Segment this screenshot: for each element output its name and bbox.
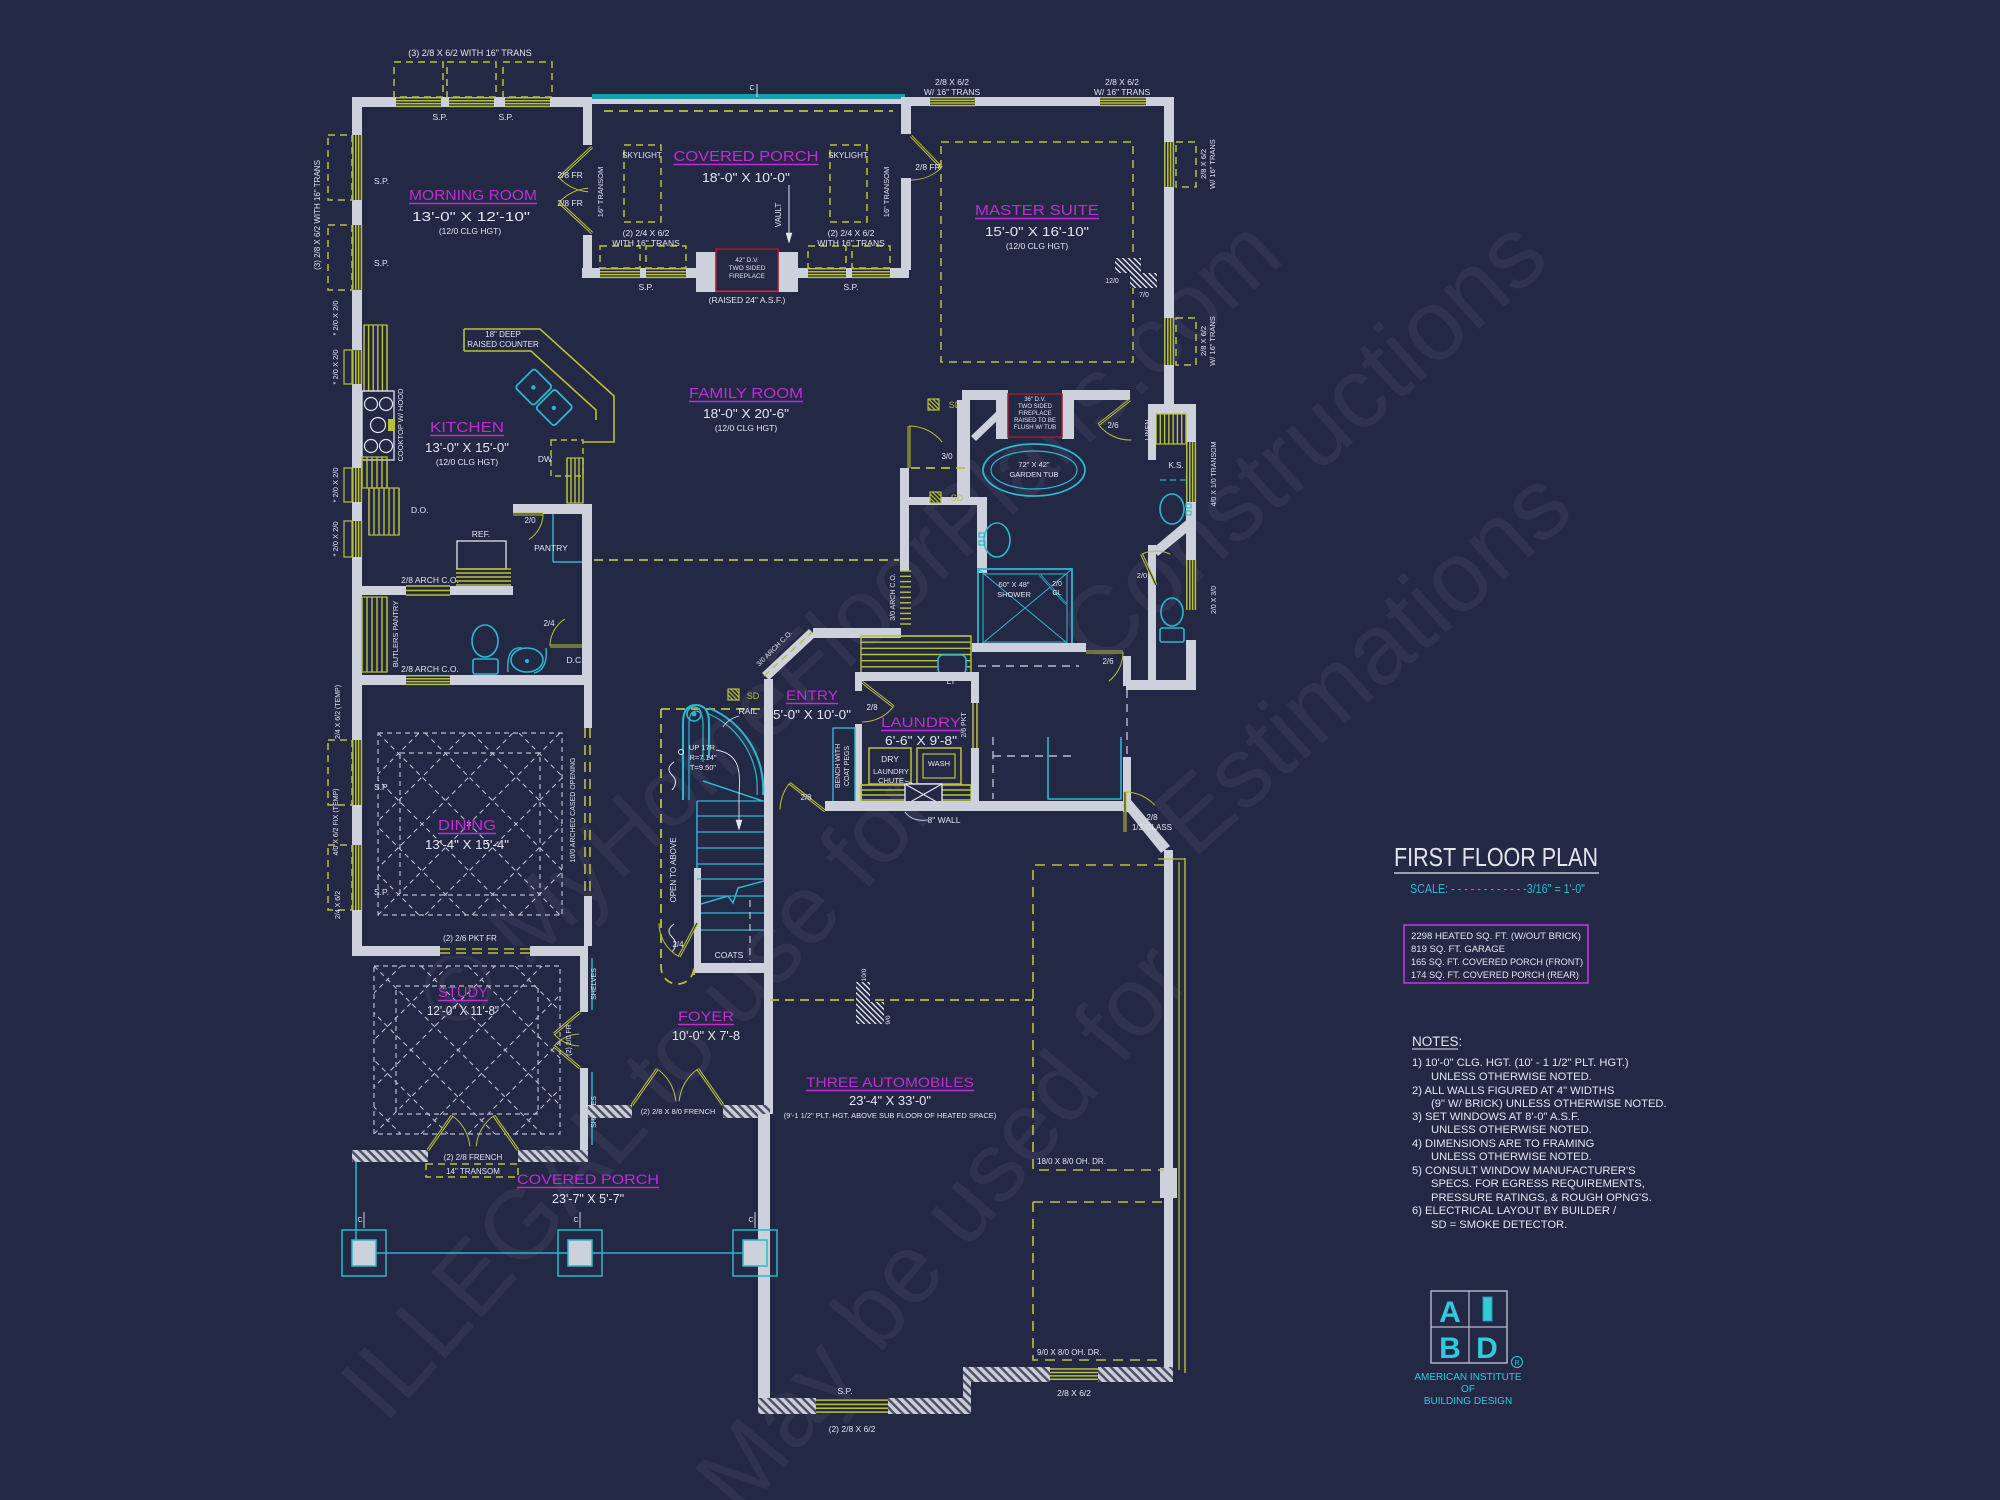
svg-text:A: A	[1439, 1296, 1461, 1329]
svg-text:SKYLIGHT: SKYLIGHT	[622, 151, 662, 160]
svg-text:18'-0" X 10'-0": 18'-0" X 10'-0"	[702, 170, 790, 185]
svg-text:COOKTOP W/ HOOD: COOKTOP W/ HOOD	[396, 388, 405, 462]
svg-text:2/8 X 6/2: 2/8 X 6/2	[1057, 1388, 1091, 1398]
svg-text:2/6: 2/6	[1102, 657, 1114, 666]
svg-text:2/8 X 6/2: 2/8 X 6/2	[1199, 149, 1208, 179]
svg-text:C: C	[573, 1217, 578, 1224]
svg-text:174 SQ. FT. COVERED PORCH (REA: 174 SQ. FT. COVERED PORCH (REAR)	[1411, 970, 1579, 981]
svg-text:2/8 ARCH C.O.: 2/8 ARCH C.O.	[401, 575, 459, 585]
svg-text:2/8: 2/8	[866, 703, 878, 712]
svg-text:10'-0" X 7'-8: 10'-0" X 7'-8	[672, 1029, 740, 1043]
svg-text:(2) 2/8 X 8/0 FRENCH: (2) 2/8 X 8/0 FRENCH	[641, 1107, 716, 1116]
svg-text:UNLESS OTHERWISE NOTED.: UNLESS OTHERWISE NOTED.	[1431, 1071, 1592, 1083]
svg-text:LAUNDRY: LAUNDRY	[881, 714, 962, 730]
svg-text:2/8 ARCH C.O.: 2/8 ARCH C.O.	[401, 664, 459, 674]
svg-text:1/2 GLASS: 1/2 GLASS	[1132, 823, 1172, 832]
svg-text:(2) 2/0 FR: (2) 2/0 FR	[566, 1024, 573, 1056]
svg-text:* 2/0 X 2/0: * 2/0 X 2/0	[331, 467, 340, 502]
svg-text:TWO SIDED: TWO SIDED	[1018, 404, 1053, 410]
svg-text:2/4: 2/4	[672, 940, 684, 949]
svg-text:2/0: 2/0	[524, 516, 536, 525]
svg-text:2/8: 2/8	[1146, 813, 1158, 822]
svg-text:2) ALL WALLS FIGURED AT 4" WI: 2) ALL WALLS FIGURED AT 4" WIDTHS	[1412, 1085, 1614, 1097]
svg-text:(12/0 CLG HGT): (12/0 CLG HGT)	[715, 423, 778, 433]
svg-text:9/0 X 8/0 OH. DR.: 9/0 X 8/0 OH. DR.	[1037, 1348, 1101, 1357]
svg-text:2/8: 2/8	[800, 793, 812, 802]
svg-text:S.P.: S.P.	[374, 176, 389, 186]
svg-text:18/0 X 8/0 OH. DR.: 18/0 X 8/0 OH. DR.	[1037, 1157, 1106, 1166]
svg-text:2298 HEATED SQ. FT. (W/OUT BRI: 2298 HEATED SQ. FT. (W/OUT BRICK)	[1411, 931, 1581, 942]
svg-text:6'-6" X 9'-8": 6'-6" X 9'-8"	[885, 734, 957, 748]
svg-text:PRESSURE RATINGS, & ROUGH OPNG: PRESSURE RATINGS, & ROUGH OPNG'S.	[1431, 1192, 1652, 1204]
svg-text:S.P.: S.P.	[433, 112, 448, 122]
svg-text:2/0: 2/0	[1052, 581, 1062, 588]
svg-text:9/0: 9/0	[885, 1015, 892, 1024]
svg-text:15'-0" X 16'-10": 15'-0" X 16'-10"	[985, 224, 1089, 239]
svg-text:2/6: 2/6	[1107, 421, 1119, 430]
svg-text:UNLESS OTHERWISE NOTED.: UNLESS OTHERWISE NOTED.	[1431, 1151, 1592, 1163]
svg-text:13'-4" X 15'-4": 13'-4" X 15'-4"	[425, 838, 509, 852]
svg-text:WITH 16" TRANS: WITH 16" TRANS	[612, 238, 680, 248]
svg-text:60" X 48": 60" X 48"	[998, 580, 1030, 589]
svg-text:B: B	[1439, 1332, 1461, 1365]
svg-text:FAMILY ROOM: FAMILY ROOM	[689, 385, 803, 402]
svg-text:4) DIMENSIONS ARE TO FRAMING: 4) DIMENSIONS ARE TO FRAMING	[1412, 1138, 1594, 1150]
svg-text:R: R	[1514, 1360, 1519, 1367]
svg-text:SKYLIGHT: SKYLIGHT	[828, 151, 868, 160]
svg-text:CHUTE: CHUTE	[878, 776, 904, 785]
svg-text:2/8 FR: 2/8 FR	[557, 198, 583, 208]
svg-text:(2) 2/4 X 6/2: (2) 2/4 X 6/2	[623, 228, 670, 238]
svg-text:NOTES:: NOTES:	[1412, 1034, 1462, 1049]
svg-text:7/0: 7/0	[1139, 292, 1149, 299]
svg-text:FOYER: FOYER	[678, 1008, 734, 1024]
svg-text:5'-0" X 10'-0": 5'-0" X 10'-0"	[773, 708, 851, 722]
svg-text:THREE AUTOMOBILES: THREE AUTOMOBILES	[806, 1074, 974, 1090]
svg-text:COATS: COATS	[715, 950, 744, 960]
svg-text:16" TRANSOM: 16" TRANSOM	[596, 167, 605, 217]
svg-text:T=9.50": T=9.50"	[690, 763, 717, 772]
svg-text:MORNING ROOM: MORNING ROOM	[409, 187, 537, 204]
svg-text:(2) 2/4 X 6/2: (2) 2/4 X 6/2	[828, 228, 875, 238]
svg-text:23'-4" X 33'-0": 23'-4" X 33'-0"	[849, 1094, 931, 1108]
svg-text:2/4: 2/4	[543, 619, 555, 628]
svg-text:FLUSH W/ TUB: FLUSH W/ TUB	[1014, 425, 1056, 431]
svg-text:S.P.: S.P.	[639, 282, 654, 292]
svg-text:16" TRANSOM: 16" TRANSOM	[882, 167, 891, 217]
svg-text:RAIL: RAIL	[739, 706, 758, 716]
svg-text:UP 17R: UP 17R	[689, 743, 716, 752]
svg-text:5) CONSULT WINDOW MANUFACTURER: 5) CONSULT WINDOW MANUFACTURER'S	[1412, 1165, 1636, 1177]
svg-text:SD: SD	[951, 493, 964, 503]
svg-text:KITCHEN: KITCHEN	[430, 419, 504, 436]
svg-text:* 2/0 X 2/0: * 2/0 X 2/0	[331, 349, 340, 384]
svg-text:42" D.V.: 42" D.V.	[735, 257, 759, 264]
svg-text:UNLESS OTHERWISE NOTED.: UNLESS OTHERWISE NOTED.	[1431, 1124, 1592, 1136]
svg-text:23'-7" X 5'-7": 23'-7" X 5'-7"	[552, 1192, 624, 1206]
svg-text:(12/0 CLG HGT): (12/0 CLG HGT)	[439, 226, 502, 236]
svg-text:* 2/0 X 2/0: * 2/0 X 2/0	[331, 300, 340, 335]
svg-text:SD = SMOKE DETECTOR.: SD = SMOKE DETECTOR.	[1431, 1219, 1567, 1231]
svg-text:DINING: DINING	[438, 817, 496, 834]
svg-text:WASH: WASH	[928, 759, 950, 768]
svg-text:SHELVES: SHELVES	[591, 968, 598, 1000]
svg-text:(9" W/ BRICK) UNLESS OTHERWISE: (9" W/ BRICK) UNLESS OTHERWISE NOTED.	[1431, 1098, 1667, 1110]
svg-text:2/8 X 6/2: 2/8 X 6/2	[935, 77, 969, 87]
svg-text:12/0: 12/0	[1105, 278, 1119, 285]
svg-text:(9'-1 1/2" PLT. HGT. ABOVE SUB: (9'-1 1/2" PLT. HGT. ABOVE SUB FLOOR OF …	[784, 1111, 997, 1120]
svg-text:S.P.: S.P.	[499, 112, 514, 122]
svg-text:COAT PEGS: COAT PEGS	[844, 746, 851, 787]
svg-text:R=7.14": R=7.14"	[689, 753, 716, 762]
svg-text:4/0 X 1/0 TRANSOM: 4/0 X 1/0 TRANSOM	[1211, 441, 1218, 506]
svg-text:3/0: 3/0	[941, 452, 953, 461]
svg-text:PANTRY: PANTRY	[534, 543, 568, 553]
svg-text:6) ELECTRICAL LAYOUT BY BUILDE: 6) ELECTRICAL LAYOUT BY BUILDER /	[1412, 1205, 1617, 1217]
svg-text:W/ 16" TRANS: W/ 16" TRANS	[1208, 316, 1217, 366]
svg-text:FIREPLACE: FIREPLACE	[729, 273, 766, 280]
svg-text:ENTRY: ENTRY	[786, 687, 839, 703]
svg-text:BUTLERS PANTRY: BUTLERS PANTRY	[391, 601, 400, 667]
svg-text:2/0: 2/0	[1137, 571, 1147, 580]
svg-text:W/ 16" TRANS: W/ 16" TRANS	[1094, 87, 1151, 97]
svg-text:(RAISED 24" A.S.F.): (RAISED 24" A.S.F.)	[709, 295, 786, 305]
svg-text:(12/0 CLG HGT): (12/0 CLG HGT)	[1006, 241, 1069, 251]
svg-text:K.S.: K.S.	[1168, 461, 1183, 470]
svg-text:(3) 2/8 X 6/2 WITH 16" TRANS: (3) 2/8 X 6/2 WITH 16" TRANS	[313, 160, 322, 270]
svg-text:FIRST FLOOR PLAN: FIRST FLOOR PLAN	[1394, 842, 1598, 872]
svg-text:STUDY: STUDY	[438, 984, 488, 1001]
svg-text:D.C.: D.C.	[567, 655, 584, 665]
svg-text:C: C	[748, 1217, 753, 1224]
svg-text:2/0 X 3/0: 2/0 X 3/0	[1211, 586, 1218, 614]
svg-text:AMERICAN INSTITUTE: AMERICAN INSTITUTE	[1414, 1372, 1522, 1383]
svg-text:13'-0" X 12'-10": 13'-0" X 12'-10"	[412, 209, 531, 224]
svg-text:14" TRANSOM: 14" TRANSOM	[446, 1167, 500, 1176]
svg-text:10/0: 10/0	[861, 968, 868, 981]
svg-text:SD: SD	[747, 691, 760, 701]
svg-text:36" D.V.: 36" D.V.	[1024, 397, 1046, 403]
svg-text:D: D	[1476, 1332, 1498, 1365]
svg-text:SPECS. FOR EGRESS REQUIREMENTS: SPECS. FOR EGRESS REQUIREMENTS,	[1431, 1178, 1645, 1190]
svg-text:2/8 X 6/2: 2/8 X 6/2	[1199, 326, 1208, 356]
svg-text:3/0 ARCH C.O.: 3/0 ARCH C.O.	[890, 573, 897, 621]
svg-text:OF: OF	[1461, 1384, 1475, 1395]
svg-text:MASTER SUITE: MASTER SUITE	[975, 202, 1099, 219]
svg-text:RAISED TO BE: RAISED TO BE	[1014, 418, 1056, 424]
svg-text:165 SQ. FT. COVERED PORCH (FRO: 165 SQ. FT. COVERED PORCH (FRONT)	[1411, 957, 1583, 968]
svg-text:2/6 PKT: 2/6 PKT	[961, 712, 968, 738]
svg-text:(3) 2/8 X 6/2 WITH 16" TRANS: (3) 2/8 X 6/2 WITH 16" TRANS	[408, 48, 532, 58]
svg-text:3) SET WINDOWS AT 8'-0" A.S.F.: 3) SET WINDOWS AT 8'-0" A.S.F.	[1412, 1111, 1580, 1123]
svg-text:S.P.: S.P.	[374, 887, 389, 897]
svg-text:S.P.: S.P.	[838, 1386, 853, 1396]
svg-text:VAULT: VAULT	[774, 203, 783, 228]
svg-text:SHOWER: SHOWER	[997, 590, 1031, 599]
svg-text:4/0 X 6/2 FIX (TEMP): 4/0 X 6/2 FIX (TEMP)	[333, 789, 340, 856]
svg-text:(2) 2/8 FRENCH: (2) 2/8 FRENCH	[444, 1153, 503, 1162]
svg-text:(2) 2/8 X 6/2: (2) 2/8 X 6/2	[829, 1424, 876, 1434]
svg-text:2/4 X 6/2 (TEMP): 2/4 X 6/2 (TEMP)	[335, 685, 342, 739]
svg-text:COVERED PORCH: COVERED PORCH	[674, 148, 819, 165]
svg-text:W/ 16" TRANS: W/ 16" TRANS	[924, 87, 981, 97]
svg-text:72" X 42": 72" X 42"	[1018, 460, 1050, 469]
svg-text:TWO SIDED: TWO SIDED	[729, 265, 766, 272]
svg-text:GL: GL	[1052, 590, 1061, 597]
svg-text:REF.: REF.	[472, 529, 490, 539]
svg-text:2/8 FR: 2/8 FR	[557, 170, 583, 180]
svg-text:DW: DW	[538, 454, 552, 464]
svg-text:WITH 16" TRANS: WITH 16" TRANS	[817, 238, 885, 248]
svg-text:OPEN TO ABOVE: OPEN TO ABOVE	[669, 837, 678, 902]
svg-text:W/ 16" TRANS: W/ 16" TRANS	[1208, 139, 1217, 189]
svg-text:C: C	[357, 1217, 362, 1224]
svg-text:(12/0 CLG HGT): (12/0 CLG HGT)	[436, 457, 499, 467]
svg-text:BENCH WITH: BENCH WITH	[835, 744, 842, 788]
svg-text:S.P.: S.P.	[374, 782, 389, 792]
svg-text:SCALE: - - - - - - - - - - -: SCALE: - - - - - - - - - - - -3/16" = 1'…	[1410, 882, 1585, 896]
svg-text:18'-0" X 20'-6": 18'-0" X 20'-6"	[703, 406, 789, 421]
svg-text:S.P.: S.P.	[374, 258, 389, 268]
svg-text:819 SQ. FT. GARAGE: 819 SQ. FT. GARAGE	[1411, 944, 1505, 955]
svg-text:10/0 ARCHED CASED OPENING: 10/0 ARCHED CASED OPENING	[570, 757, 577, 862]
svg-text:(2) 2/6 PKT FR: (2) 2/6 PKT FR	[443, 934, 497, 943]
svg-text:C: C	[749, 85, 754, 92]
svg-text:RAISED COUNTER: RAISED COUNTER	[467, 340, 539, 349]
svg-text:12'-0" X 11'-8": 12'-0" X 11'-8"	[427, 1004, 499, 1018]
svg-text:FIREPLACE: FIREPLACE	[1018, 411, 1051, 417]
svg-text:2/8 FR: 2/8 FR	[915, 162, 941, 172]
svg-text:D.O.: D.O.	[411, 505, 428, 515]
svg-text:LAUNDRY: LAUNDRY	[873, 767, 909, 776]
svg-text:2/4 X 6/2: 2/4 X 6/2	[335, 891, 342, 919]
svg-text:GARDEN TUB: GARDEN TUB	[1009, 470, 1058, 479]
svg-text:13'-0" X 15'-0": 13'-0" X 15'-0"	[425, 440, 509, 455]
svg-text:1) 10'-0" CLG. HGT. (10' - 1: 1) 10'-0" CLG. HGT. (10' - 1 1/2" PLT. H…	[1412, 1057, 1629, 1069]
svg-text:8" WALL: 8" WALL	[928, 815, 961, 825]
svg-text:DRY: DRY	[881, 754, 899, 764]
svg-text:BUILDING DESIGN: BUILDING DESIGN	[1424, 1396, 1512, 1407]
svg-text:18" DEEP: 18" DEEP	[485, 330, 521, 339]
svg-text:COVERED PORCH: COVERED PORCH	[517, 1171, 659, 1187]
svg-text:S.P.: S.P.	[844, 282, 859, 292]
svg-text:* 2/0 X 2/0: * 2/0 X 2/0	[331, 521, 340, 556]
svg-text:2/8 X 6/2: 2/8 X 6/2	[1105, 77, 1139, 87]
